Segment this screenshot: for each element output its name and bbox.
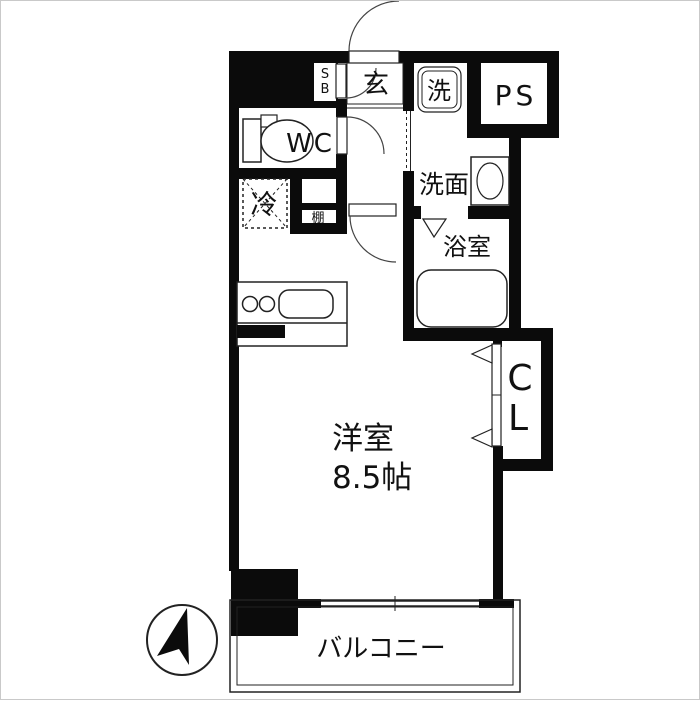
washroom-label: 洗面 [419,170,469,199]
hall-door [349,204,396,262]
shoe-box-label-s: S [321,67,329,82]
wc-door-leaf [337,117,347,154]
wall-hall-left-lower [336,154,347,234]
shoe-box-label-b: B [321,82,330,97]
wall-hall-right-upper [403,51,414,111]
hall-door-arc-icon [350,216,396,262]
stove-burner-1-icon [243,297,258,312]
bathtub-icon [417,270,507,327]
wall-cl-right [541,328,553,471]
wall-hall-left-upper [336,99,347,117]
floor-plan-image: 玄 S B 洗 PS WC 冷 棚 洗面 浴室 C L 洋室 8.5帖 バルコニ… [0,0,700,700]
closet-label-c: C [507,358,532,399]
wall-pillar [231,569,298,636]
entry-door-arc-icon [349,1,399,51]
wall-shelf-mid [302,203,341,210]
wall-wc-bottom [229,168,347,179]
balcony-label: バルコニー [316,634,445,664]
closet-label-l: L [508,398,528,439]
main-room-size-label: 8.5帖 [332,460,412,496]
washbasin-bowl-icon [477,163,503,199]
wall-fridge-divider [290,178,302,229]
hall-door-leaf [349,204,396,216]
closet-area [472,344,501,447]
cl-door-arrow-bottom-icon [472,429,492,447]
wall-wet-area-right [509,136,521,341]
shoebox-door-leaf [336,64,346,98]
kitchen-stub-wall [237,325,285,338]
washer-label: 洗 [427,77,451,105]
wc-label: WC [286,129,334,159]
entry-door-leaf [349,51,399,63]
compass-icon [147,605,217,675]
toilet-tank-icon [243,119,261,162]
pipe-space-label: PS [495,79,538,112]
kitchen-sink-icon [279,290,333,318]
wall-bath-divider-left [403,206,421,219]
main-room-name-label: 洋室 [332,421,394,457]
refrigerator-label: 冷 [251,190,278,221]
wall-hall-right-lower [403,171,414,341]
shelf-label: 棚 [311,211,324,226]
floor-plan-svg: 玄 S B 洗 PS WC 冷 棚 洗面 浴室 C L 洋室 8.5帖 バルコニ… [1,1,700,701]
cl-door-arrow-top-icon [472,345,492,363]
wall-room-right [493,446,503,604]
bathroom-label: 浴室 [443,233,491,261]
wc-door-arc-icon [347,117,384,154]
wall-bath-bottom-cl-top [403,328,553,341]
stove-burner-2-icon [260,297,275,312]
kitchen-area [237,282,347,346]
entrance-label: 玄 [363,70,389,100]
